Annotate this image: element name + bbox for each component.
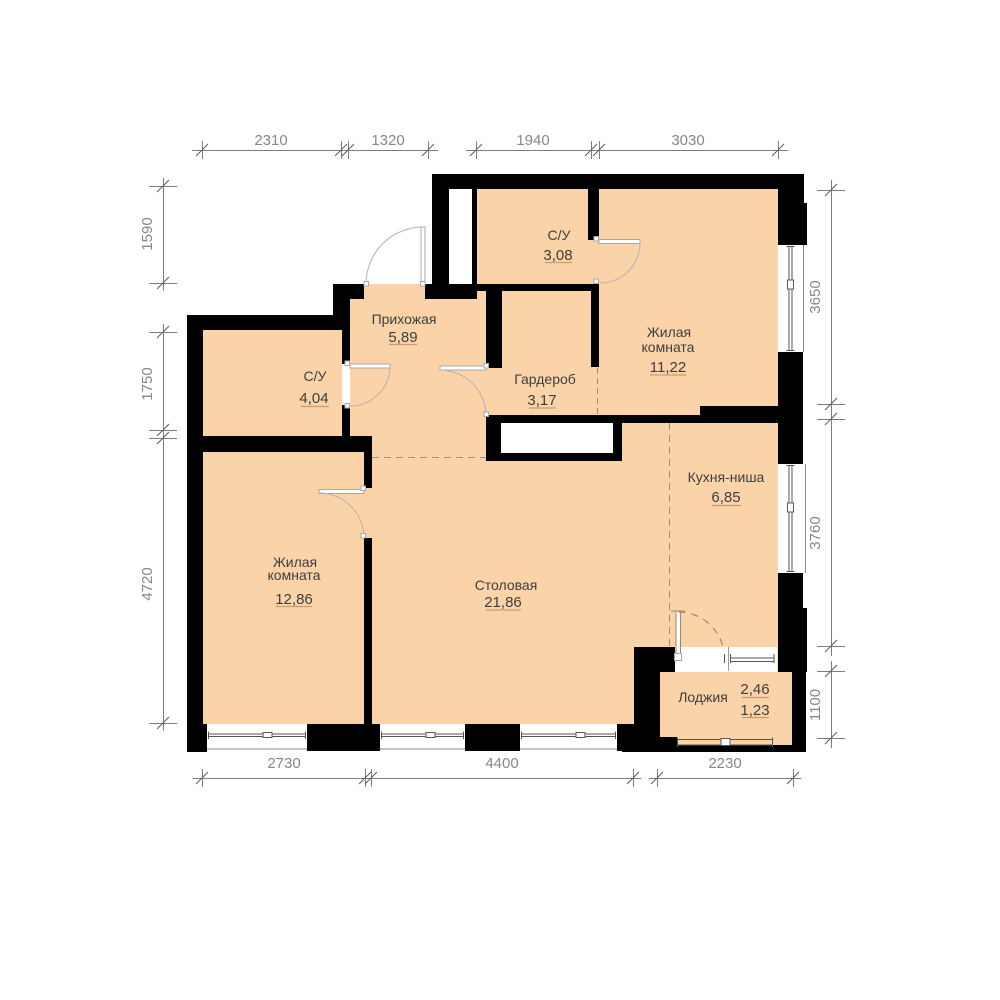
svg-text:Лоджия: Лоджия: [678, 689, 728, 705]
svg-text:3030: 3030: [671, 132, 704, 149]
svg-text:С/У: С/У: [304, 368, 327, 384]
svg-text:3650: 3650: [807, 280, 824, 313]
svg-text:4720: 4720: [139, 567, 156, 600]
svg-text:5,89: 5,89: [388, 329, 417, 346]
svg-text:комната: комната: [268, 567, 321, 583]
svg-text:1590: 1590: [139, 217, 156, 250]
svg-text:1940: 1940: [516, 132, 549, 149]
svg-text:1750: 1750: [139, 367, 156, 400]
svg-text:2,46: 2,46: [740, 681, 769, 698]
svg-text:2730: 2730: [267, 755, 300, 772]
svg-text:С/У: С/У: [548, 227, 571, 243]
svg-text:3,08: 3,08: [543, 247, 572, 264]
svg-text:6,85: 6,85: [711, 489, 740, 506]
svg-text:Прихожая: Прихожая: [372, 311, 437, 327]
svg-text:1320: 1320: [371, 132, 404, 149]
svg-text:4,04: 4,04: [299, 390, 328, 407]
svg-text:Столовая: Столовая: [475, 577, 538, 593]
svg-text:3,17: 3,17: [527, 392, 556, 409]
svg-text:комната: комната: [642, 339, 695, 355]
svg-text:11,22: 11,22: [650, 359, 686, 376]
svg-text:3760: 3760: [807, 516, 824, 549]
svg-text:21,86: 21,86: [484, 594, 522, 611]
svg-text:2310: 2310: [254, 132, 287, 149]
svg-text:Гардероб: Гардероб: [514, 371, 576, 387]
svg-text:1,23: 1,23: [740, 702, 769, 719]
svg-text:2230: 2230: [708, 755, 741, 772]
svg-text:12,86: 12,86: [275, 591, 313, 608]
svg-text:Жилая: Жилая: [647, 324, 691, 340]
svg-text:4400: 4400: [485, 755, 518, 772]
svg-text:1100: 1100: [807, 689, 824, 721]
svg-text:Кухня-ниша: Кухня-ниша: [688, 469, 765, 485]
